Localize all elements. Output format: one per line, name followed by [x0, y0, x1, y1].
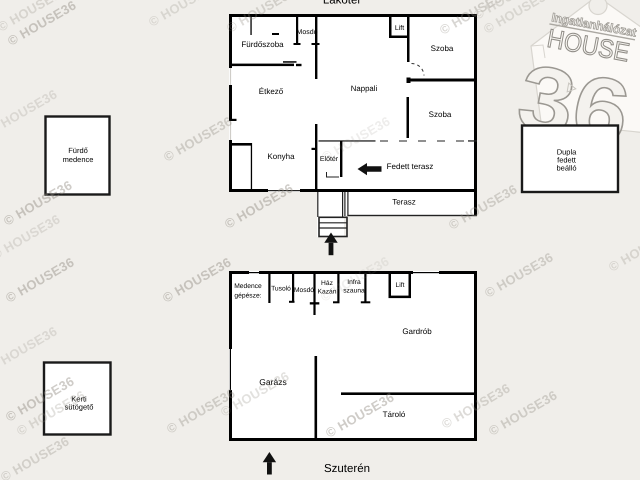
svg-text:Gardrób: Gardrób: [402, 327, 432, 336]
svg-text:Mosdó: Mosdó: [294, 287, 314, 294]
svg-text:Étkező: Étkező: [259, 87, 284, 96]
svg-text:Kazán: Kazán: [318, 289, 337, 296]
svg-text:Garázs: Garázs: [259, 377, 286, 387]
svg-text:Nappali: Nappali: [351, 84, 378, 93]
svg-text:Lift: Lift: [395, 24, 404, 32]
svg-text:Tusoló: Tusoló: [271, 286, 291, 293]
svg-text:Medence: Medence: [234, 283, 262, 290]
svg-text:Ház: Ház: [321, 280, 334, 287]
svg-text:gépésze:: gépésze:: [234, 293, 261, 300]
svg-text:Infra: Infra: [347, 279, 361, 286]
svg-text:sütögető: sütögető: [65, 403, 94, 412]
svg-text:Szoba: Szoba: [431, 44, 454, 53]
svg-text:Szoba: Szoba: [429, 110, 452, 119]
svg-text:Tároló: Tároló: [383, 410, 406, 419]
svg-text:Fürdő: Fürdő: [68, 146, 88, 155]
svg-text:Lakótér: Lakótér: [323, 0, 362, 7]
svg-text:Mosdó: Mosdó: [296, 28, 317, 36]
svg-text:Lift: Lift: [396, 282, 405, 289]
svg-text:Konyha: Konyha: [267, 152, 295, 161]
svg-text:Előtér: Előtér: [320, 155, 339, 163]
svg-text:medence: medence: [63, 155, 94, 164]
svg-text:Szuterén: Szuterén: [324, 463, 370, 475]
svg-text:szauna: szauna: [343, 288, 365, 295]
svg-text:Fürdőszoba: Fürdőszoba: [241, 40, 284, 49]
svg-text:beálló: beálló: [556, 164, 576, 173]
svg-text:Fedett terasz: Fedett terasz: [387, 162, 434, 171]
svg-text:Terasz: Terasz: [392, 198, 416, 207]
